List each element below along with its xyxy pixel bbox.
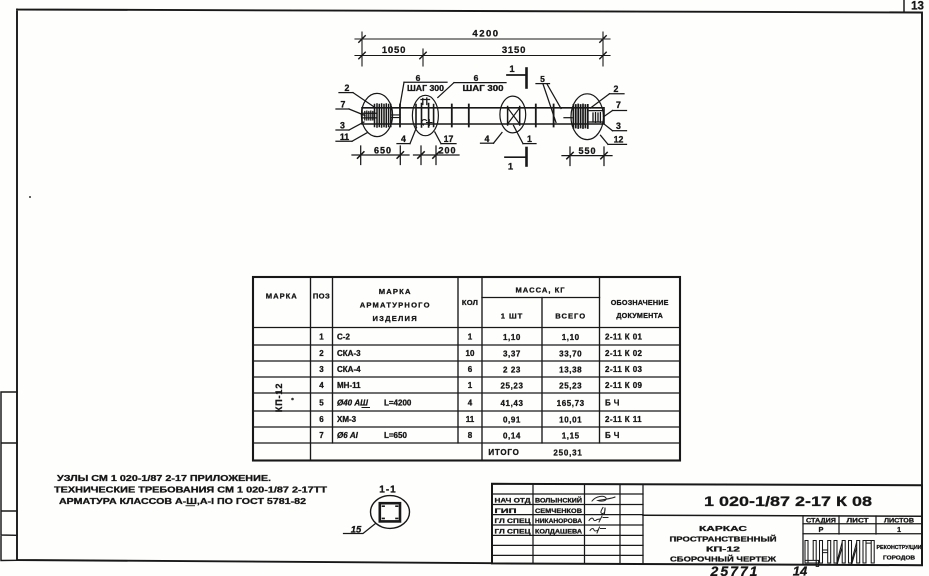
svg-text:11: 11 <box>340 132 349 142</box>
svg-text:ОБОЗНАЧЕНИЕ: ОБОЗНАЧЕНИЕ <box>611 298 669 307</box>
svg-text:13: 13 <box>911 1 924 13</box>
svg-text:2: 2 <box>319 349 324 358</box>
svg-text:6: 6 <box>319 415 324 424</box>
svg-text:3: 3 <box>616 121 621 131</box>
svg-text:1,10: 1,10 <box>562 333 580 342</box>
svg-text:МАРКА: МАРКА <box>379 287 412 296</box>
svg-text:НИКАНОРОВА: НИКАНОРОВА <box>535 518 582 525</box>
svg-text:5: 5 <box>540 74 545 84</box>
svg-text:1 ШТ: 1 ШТ <box>501 312 524 321</box>
svg-text:КОЛДАШЕВА: КОЛДАШЕВА <box>535 529 582 536</box>
svg-text:ГЛ СПЕЦ: ГЛ СПЕЦ <box>495 518 531 525</box>
svg-text:ГОРОДОВ: ГОРОДОВ <box>883 556 915 562</box>
svg-text:4: 4 <box>401 134 406 144</box>
svg-text:1: 1 <box>509 64 515 75</box>
svg-text:25,23: 25,23 <box>559 382 582 391</box>
svg-text:1: 1 <box>527 134 532 144</box>
svg-text:ШАГ 300: ШАГ 300 <box>407 84 445 93</box>
svg-text:ХМ-3: ХМ-3 <box>337 415 357 424</box>
svg-text:3: 3 <box>340 121 345 131</box>
svg-text:КП-12: КП-12 <box>274 383 284 413</box>
svg-text:7: 7 <box>319 431 324 440</box>
svg-text:СТАДИЯ: СТАДИЯ <box>806 517 836 524</box>
svg-text:1050: 1050 <box>382 45 406 56</box>
svg-text:НАЧ ОТД: НАЧ ОТД <box>495 498 531 505</box>
svg-text:ПОЗ: ПОЗ <box>313 292 330 301</box>
svg-text:165,73: 165,73 <box>557 399 585 408</box>
svg-text:13,38: 13,38 <box>559 366 582 375</box>
svg-text:6: 6 <box>468 365 473 374</box>
svg-text:8: 8 <box>468 431 473 440</box>
svg-text:3,37: 3,37 <box>503 350 521 359</box>
svg-text:4: 4 <box>468 399 473 408</box>
svg-text:ИЗДЕЛИЯ: ИЗДЕЛИЯ <box>373 314 418 323</box>
svg-text:L=650: L=650 <box>384 431 407 440</box>
svg-text:ЛИСТ: ЛИСТ <box>847 517 869 524</box>
svg-text:ВСЕГО: ВСЕГО <box>555 312 586 321</box>
svg-text:2: 2 <box>345 83 350 93</box>
svg-text:МН-11: МН-11 <box>337 381 361 390</box>
svg-text:7: 7 <box>616 100 621 110</box>
svg-text:250,31: 250,31 <box>553 449 582 458</box>
svg-text:6: 6 <box>474 73 479 83</box>
svg-text:5: 5 <box>319 399 324 408</box>
svg-text:10,01: 10,01 <box>559 416 582 425</box>
svg-text:1-1: 1-1 <box>379 485 396 496</box>
svg-text:РЕКОНСТРУ/ЦИИ: РЕКОНСТРУ/ЦИИ <box>877 545 922 551</box>
svg-text:КП-12: КП-12 <box>706 545 740 554</box>
svg-text:2 23: 2 23 <box>503 366 521 375</box>
svg-text:ПРОСТРАНСТВЕННЫЙ: ПРОСТРАНСТВЕННЫЙ <box>670 535 777 544</box>
svg-text:0,14: 0,14 <box>503 432 521 441</box>
svg-text:10: 10 <box>466 349 475 358</box>
svg-text:650: 650 <box>374 146 392 156</box>
svg-text:ГЛ СПЕЦ: ГЛ СПЕЦ <box>495 529 531 536</box>
svg-text:33,70: 33,70 <box>559 350 582 359</box>
svg-text:1: 1 <box>508 162 514 173</box>
svg-text:4200: 4200 <box>472 29 499 40</box>
svg-text:4: 4 <box>485 134 490 144</box>
svg-text:ГИП: ГИП <box>495 508 517 515</box>
svg-text:1,10: 1,10 <box>503 333 521 342</box>
svg-text:ВОЛЫНСКИЙ: ВОЛЫНСКИЙ <box>535 496 582 505</box>
svg-text:11: 11 <box>466 415 475 424</box>
svg-text:МАРКА: МАРКА <box>266 292 298 301</box>
svg-text:0,91: 0,91 <box>503 416 521 425</box>
svg-text:L=4200: L=4200 <box>384 399 412 408</box>
svg-text:ШАГ 300: ШАГ 300 <box>463 84 505 93</box>
svg-text:2-11 К 01: 2-11 К 01 <box>605 333 643 342</box>
svg-text:2: 2 <box>614 84 619 94</box>
svg-text:12: 12 <box>614 135 624 145</box>
svg-text:УЗЛЫ СМ 1 020-1/87 2-17 ПРИЛОЖ: УЗЛЫ СМ 1 020-1/87 2-17 ПРИЛОЖЕНИЕ. <box>57 474 271 483</box>
svg-text:С-2: С-2 <box>337 333 350 342</box>
svg-text:КОЛ: КОЛ <box>462 298 478 307</box>
svg-text:АРМАТУРНОГО: АРМАТУРНОГО <box>360 301 431 310</box>
svg-text:Ø6 АI: Ø6 АI <box>337 431 359 440</box>
svg-text:25,23: 25,23 <box>500 382 523 391</box>
svg-text:СКА-4: СКА-4 <box>337 365 361 374</box>
svg-text:6: 6 <box>416 73 421 83</box>
svg-text:3150: 3150 <box>502 45 526 56</box>
svg-text:1,15: 1,15 <box>562 432 580 441</box>
svg-text:1 020-1/87 2-17 К 08: 1 020-1/87 2-17 К 08 <box>704 494 873 509</box>
svg-text:550: 550 <box>578 146 596 156</box>
svg-text:Р: Р <box>819 525 824 534</box>
svg-text:1: 1 <box>468 333 473 342</box>
svg-text:200: 200 <box>438 146 456 156</box>
svg-text:14: 14 <box>793 564 808 576</box>
svg-text:Б Ч: Б Ч <box>605 399 620 408</box>
svg-text:25771: 25771 <box>710 563 760 576</box>
svg-text:ТЕХНИЧЕСКИЕ ТРЕБОВАНИЯ СМ 1 02: ТЕХНИЧЕСКИЕ ТРЕБОВАНИЯ СМ 1 020-1/87 2-1… <box>54 486 327 495</box>
svg-text:7: 7 <box>341 100 346 110</box>
svg-text:1: 1 <box>468 381 473 390</box>
svg-text:41,43: 41,43 <box>500 399 523 408</box>
svg-text:КАРКАС: КАРКАС <box>699 524 748 533</box>
svg-text:АРМАТУРА КЛАССОВ А-Ш,А-I ПО ГО: АРМАТУРА КЛАССОВ А-Ш,А-I ПО ГОСТ 5781-82 <box>59 497 307 506</box>
svg-text:ДОКУМЕНТА: ДОКУМЕНТА <box>616 311 663 320</box>
svg-text:2-11 К 09: 2-11 К 09 <box>605 381 643 390</box>
svg-text:СЕМЧЕНКОВ: СЕМЧЕНКОВ <box>535 508 582 515</box>
svg-text:2-11 К 02: 2-11 К 02 <box>605 349 643 358</box>
svg-text:1: 1 <box>319 333 324 342</box>
svg-text:2-11 К 03: 2-11 К 03 <box>605 365 643 374</box>
svg-text:3: 3 <box>319 365 324 374</box>
svg-text:15: 15 <box>351 525 362 536</box>
svg-text:Ø40 АШ: Ø40 АШ <box>337 399 368 408</box>
svg-text:СКА-3: СКА-3 <box>337 349 361 358</box>
svg-text:Б Ч: Б Ч <box>605 431 620 440</box>
svg-text:1: 1 <box>897 525 901 534</box>
svg-text:17: 17 <box>444 134 454 144</box>
svg-text:2-11 К 11: 2-11 К 11 <box>605 415 642 424</box>
svg-text:ЛИСТОВ: ЛИСТОВ <box>884 517 914 524</box>
svg-text:ИТОГО: ИТОГО <box>488 448 519 457</box>
svg-text:МАССА, КГ: МАССА, КГ <box>515 286 565 295</box>
svg-text:4: 4 <box>319 381 324 390</box>
